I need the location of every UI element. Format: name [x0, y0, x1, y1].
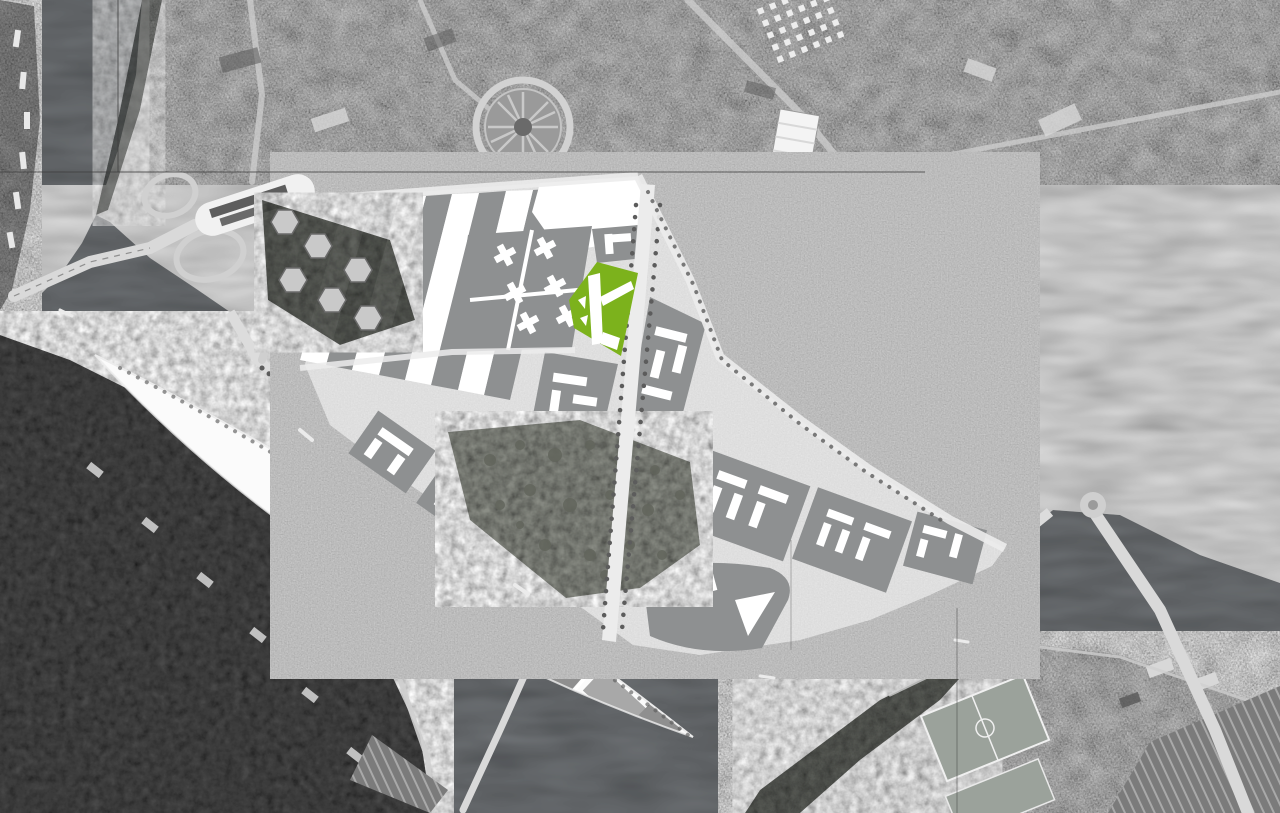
hexagon-tower [318, 288, 346, 312]
hexagon-tower [279, 268, 307, 292]
roof-center [514, 118, 532, 136]
park-pond [750, 224, 774, 240]
hexagon-tower [304, 234, 332, 258]
roundabout-center [1088, 500, 1098, 510]
aerial-map [0, 0, 1280, 813]
circular-building [476, 80, 570, 174]
hexagon-tower [271, 210, 299, 234]
hexagon-tower [344, 258, 372, 282]
aerial-photo-canvas [0, 0, 1280, 813]
cross-building-blocks [452, 226, 592, 352]
building-footprint [604, 234, 613, 255]
hexagon-tower [354, 306, 382, 330]
